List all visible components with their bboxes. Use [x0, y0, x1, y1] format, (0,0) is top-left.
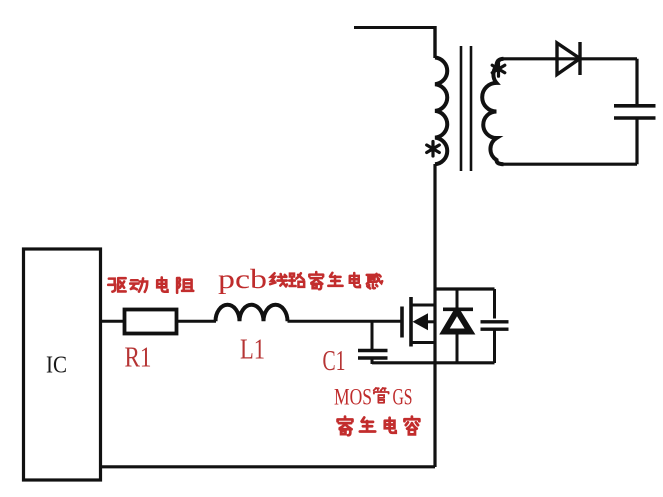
- svg-text:GS: GS: [393, 385, 413, 410]
- svg-text:C1: C1: [323, 346, 346, 377]
- svg-text:L1: L1: [240, 334, 265, 365]
- svg-text:MOS: MOS: [334, 385, 372, 410]
- svg-text:pcb: pcb: [218, 264, 267, 294]
- svg-text:IC: IC: [46, 353, 67, 379]
- svg-text:R1: R1: [125, 342, 152, 373]
